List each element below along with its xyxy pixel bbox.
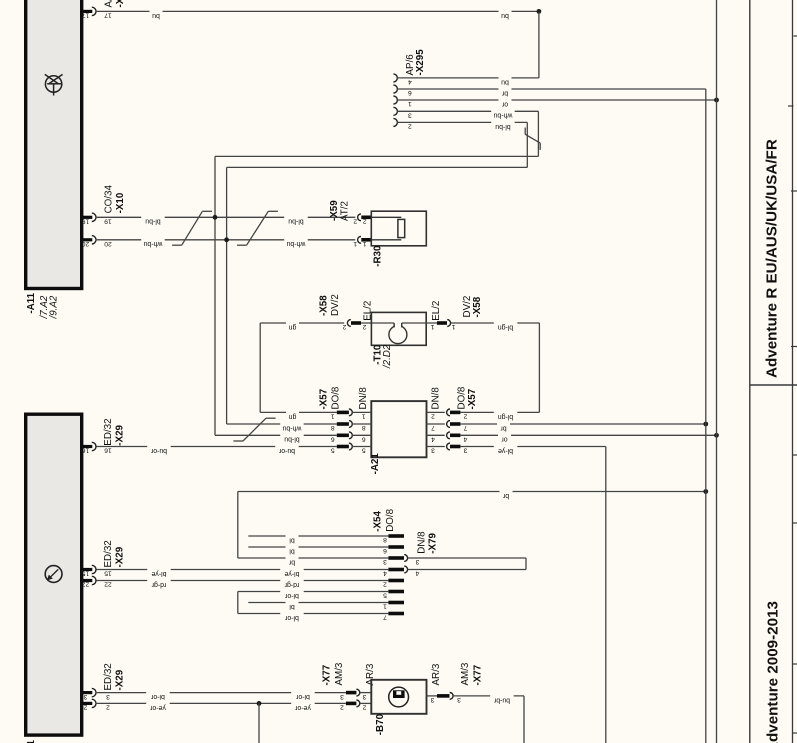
svg-text:7: 7 [383, 614, 387, 621]
svg-text:bl: bl [289, 536, 295, 543]
svg-text:bl-or: bl-or [295, 693, 309, 700]
svg-text:6: 6 [408, 89, 412, 96]
svg-text:-X29: -X29 [114, 669, 125, 690]
svg-text:4: 4 [415, 570, 419, 577]
svg-text:19: 19 [104, 218, 112, 225]
svg-text:DO/8: DO/8 [457, 386, 468, 409]
svg-text:6: 6 [362, 436, 366, 443]
svg-text:AM/3: AM/3 [460, 662, 471, 685]
svg-text:3: 3 [463, 447, 467, 454]
svg-text:3: 3 [83, 693, 87, 700]
svg-text:wh-bu: wh-bu [493, 112, 513, 119]
svg-text:1: 1 [353, 240, 357, 247]
svg-text:2: 2 [353, 218, 357, 225]
svg-text:br: br [500, 424, 507, 431]
svg-text:rd-gr: rd-gr [151, 581, 166, 588]
svg-text:CO/34: CO/34 [103, 185, 114, 214]
svg-text:bl-bu: bl-bu [284, 436, 299, 443]
svg-text:4: 4 [463, 436, 467, 443]
svg-text:2: 2 [362, 323, 366, 330]
svg-text:3: 3 [431, 447, 435, 454]
svg-text:AR/3: AR/3 [365, 663, 376, 685]
svg-text:3: 3 [340, 693, 344, 700]
svg-text:gn: gn [289, 413, 297, 420]
svg-text:ED/32: ED/32 [103, 418, 114, 445]
svg-text:16: 16 [82, 447, 90, 454]
svg-text:AR/3: AR/3 [431, 663, 442, 685]
svg-text:AM/3: AM/3 [334, 662, 345, 685]
svg-text:5: 5 [331, 447, 335, 454]
svg-text:2: 2 [362, 704, 366, 711]
svg-text:3: 3 [415, 558, 419, 565]
svg-text:-X77: -X77 [321, 664, 332, 685]
svg-text:bl-gn: bl-gn [498, 413, 513, 420]
svg-text:bl-ye: bl-ye [151, 570, 166, 577]
svg-text:-X1: -X1 [115, 0, 126, 8]
svg-text:br: br [288, 558, 295, 565]
svg-text:EL/2: EL/2 [431, 301, 442, 321]
svg-text:bl-or: bl-or [284, 592, 298, 599]
svg-text:br: br [502, 492, 509, 499]
svg-text:-X10: -X10 [115, 192, 126, 213]
svg-text:1: 1 [430, 323, 434, 330]
svg-text:/2.D2: /2.D2 [382, 344, 393, 369]
svg-text:bl-ye: bl-ye [284, 570, 299, 577]
svg-text:3: 3 [457, 696, 461, 703]
svg-text:4: 4 [408, 78, 412, 85]
svg-text:bu-br: bu-br [493, 696, 510, 703]
svg-text:DN/8: DN/8 [431, 387, 442, 410]
svg-text:ED/32: ED/32 [103, 540, 114, 567]
svg-text:-X57: -X57 [467, 388, 478, 409]
svg-text:1: 1 [362, 413, 366, 420]
svg-text:20: 20 [82, 240, 90, 247]
svg-text:wh-bu: wh-bu [282, 424, 302, 431]
svg-text:bl-or: bl-or [150, 693, 164, 700]
svg-text:-X77: -X77 [473, 664, 484, 685]
svg-text:ye-or: ye-or [149, 704, 165, 711]
svg-text:22: 22 [82, 581, 90, 588]
svg-text:-X54: -X54 [373, 511, 384, 532]
svg-text:15: 15 [104, 570, 112, 577]
svg-text:bl-or: bl-or [284, 614, 298, 621]
svg-text:3: 3 [106, 693, 110, 700]
svg-text:-R30: -R30 [372, 245, 383, 267]
svg-text:bl-bu: bl-bu [495, 123, 510, 130]
svg-text:-X59: -X59 [329, 200, 340, 221]
svg-text:DN/8: DN/8 [358, 387, 369, 410]
svg-text:8: 8 [331, 424, 335, 431]
svg-text:-X58: -X58 [472, 296, 483, 317]
svg-text:6: 6 [331, 436, 335, 443]
svg-text:-A11: -A11 [26, 292, 37, 313]
svg-text:2: 2 [106, 704, 110, 711]
svg-text:Adventure 2009-2013: Adventure 2009-2013 [765, 601, 782, 743]
svg-text:wh-bu: wh-bu [286, 240, 306, 247]
svg-text:2: 2 [363, 218, 367, 225]
svg-text:20: 20 [104, 240, 112, 247]
svg-text:DV/2: DV/2 [330, 294, 341, 316]
svg-text:DO/8: DO/8 [385, 508, 396, 531]
svg-text:DN/8: DN/8 [417, 531, 428, 554]
svg-text:1: 1 [331, 413, 335, 420]
svg-text:bu: bu [501, 12, 509, 19]
svg-text:5: 5 [362, 447, 366, 454]
svg-text:wh-bu: wh-bu [143, 240, 163, 247]
svg-text:/9.A2: /9.A2 [49, 295, 60, 319]
svg-text:-A21: -A21 [370, 453, 381, 475]
svg-text:4: 4 [383, 570, 387, 577]
svg-text:ye-or: ye-or [294, 704, 310, 711]
svg-text:AT/2: AT/2 [340, 201, 351, 221]
svg-text:-X57: -X57 [318, 388, 329, 409]
svg-text:17: 17 [82, 12, 90, 19]
svg-text:7: 7 [431, 424, 435, 431]
svg-text:-X295: -X295 [415, 49, 426, 76]
svg-text:3: 3 [408, 112, 412, 119]
svg-text:8: 8 [383, 536, 387, 543]
svg-text:or: or [501, 100, 508, 107]
svg-text:6: 6 [383, 547, 387, 554]
svg-text:15: 15 [82, 570, 90, 577]
svg-text:-X29: -X29 [114, 546, 125, 567]
svg-text:2: 2 [431, 413, 435, 420]
svg-text:DO/8: DO/8 [330, 386, 341, 409]
svg-text:Adventure R EU/AUS/UK/USA/FR: Adventure R EU/AUS/UK/USA/FR [764, 139, 781, 378]
svg-text:17: 17 [104, 12, 112, 19]
svg-text:19: 19 [82, 218, 90, 225]
svg-text:2: 2 [340, 704, 344, 711]
svg-text:br: br [501, 89, 508, 96]
svg-text:bl-gn: bl-gn [498, 323, 513, 330]
svg-text:bu-or: bu-or [278, 447, 295, 454]
svg-text:7: 7 [463, 424, 467, 431]
svg-text:bl: bl [289, 547, 295, 554]
svg-text:5: 5 [383, 592, 387, 599]
svg-text:16: 16 [104, 447, 112, 454]
svg-text:2: 2 [408, 123, 412, 130]
svg-text:rd-gr: rd-gr [284, 581, 299, 588]
svg-text:-B70: -B70 [375, 713, 386, 735]
svg-text:bl-bu: bl-bu [145, 218, 160, 225]
svg-text:4: 4 [431, 436, 435, 443]
svg-text:-X29: -X29 [114, 424, 125, 445]
svg-text:-X58: -X58 [319, 295, 330, 316]
svg-text:8: 8 [362, 424, 366, 431]
svg-text:or: or [501, 436, 508, 443]
svg-text:2: 2 [383, 581, 387, 588]
svg-text:22: 22 [104, 581, 112, 588]
svg-text:2: 2 [342, 323, 346, 330]
svg-text:bu-or: bu-or [150, 447, 167, 454]
svg-text:3: 3 [362, 693, 366, 700]
svg-text:1: 1 [408, 100, 412, 107]
svg-text:1: 1 [383, 603, 387, 610]
svg-text:3: 3 [430, 696, 434, 703]
svg-text:bu: bu [501, 78, 509, 85]
svg-text:bl-ye: bl-ye [498, 447, 513, 454]
svg-text:-X79: -X79 [427, 532, 438, 553]
svg-text:2: 2 [463, 413, 467, 420]
svg-text:1: 1 [363, 240, 367, 247]
svg-text:bu: bu [152, 12, 160, 19]
svg-text:1: 1 [451, 323, 455, 330]
svg-text:AA/2: AA/2 [103, 0, 114, 8]
svg-text:gn: gn [289, 323, 297, 330]
svg-text:bl-bu: bl-bu [288, 218, 303, 225]
svg-text:bl: bl [289, 603, 295, 610]
svg-text:3: 3 [383, 558, 387, 565]
svg-text:2: 2 [83, 704, 87, 711]
svg-text:ED/32: ED/32 [103, 663, 114, 690]
